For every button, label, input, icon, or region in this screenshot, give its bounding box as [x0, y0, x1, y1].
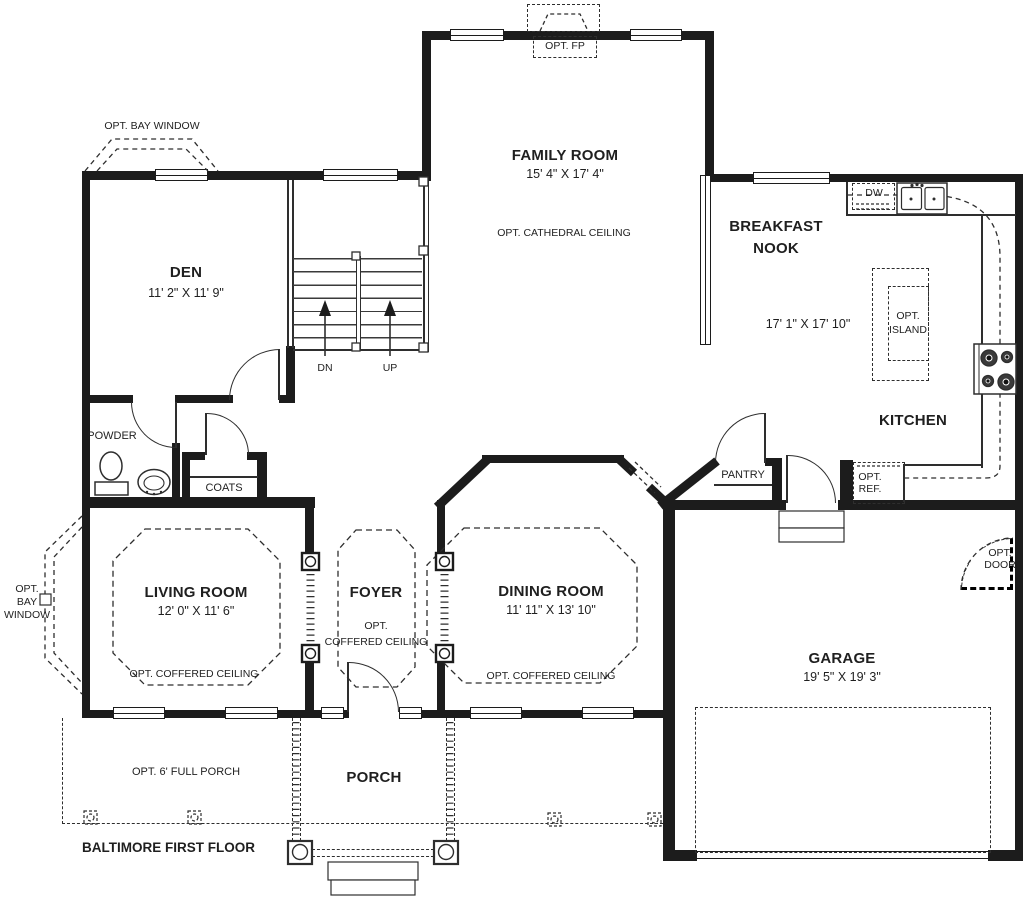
pantry-door-leaf: [764, 413, 766, 463]
opt-bay-window-left-label-1: OPT.: [15, 584, 38, 595]
opt-bay-window-top-label: OPT. BAY WINDOW: [104, 121, 199, 132]
living-room-dims: 12' 0" X 11' 6": [158, 605, 235, 618]
den-door-leaf: [278, 349, 280, 400]
dining-room-note: OPT. COFFERED CEILING: [487, 671, 616, 682]
wall: [663, 500, 675, 860]
porch-post-line: [446, 718, 447, 841]
powder-label: POWDER: [87, 431, 137, 442]
wall: [663, 850, 697, 861]
stairs-down-label: DN: [317, 363, 332, 374]
wall: [305, 497, 314, 559]
opt-bay-window-left-shape: [40, 516, 82, 694]
opt-fireplace-outline: [527, 4, 600, 32]
stair-wall: [423, 181, 425, 352]
porch-label: PORCH: [346, 770, 401, 785]
kitchen-sink-icon: [897, 183, 947, 214]
wall: [482, 455, 624, 463]
wall: [82, 171, 90, 718]
garage-label: GARAGE: [808, 651, 875, 666]
coats-label: COATS: [205, 483, 242, 494]
family-room-note: OPT. CATHEDRAL CEILING: [497, 228, 631, 239]
stair-stringer: [360, 256, 362, 351]
wall: [1015, 174, 1023, 861]
garage-dims: 19' 5" X 19' 3": [803, 671, 881, 684]
window: [450, 29, 504, 41]
wall: [305, 656, 314, 718]
family-room-dims: 15' 4" X 17' 4": [526, 168, 604, 181]
opt-bay-window-left-label-2: BAY: [17, 597, 37, 608]
porch-posts: [288, 841, 458, 864]
stair-wall: [428, 181, 430, 352]
diagonal-window: [629, 462, 661, 493]
opt-ref-label-2: REF.: [859, 484, 882, 495]
opt-bay-window-left-label-3: WINDOW: [4, 610, 50, 621]
kitchen-counter: [846, 182, 848, 216]
dining-room-label: DINING ROOM: [498, 584, 604, 599]
sidelight-window: [321, 707, 344, 719]
den-dims: 11' 2" X 11' 9": [148, 287, 224, 300]
stair-line: [293, 349, 423, 351]
breakfast-nook-label-1: BREAKFAST: [729, 219, 822, 234]
window: [225, 707, 278, 719]
kitchen-counter: [846, 214, 1016, 216]
foyer-label: FOYER: [350, 585, 403, 600]
window: [323, 169, 398, 181]
plan-title: BALTIMORE FIRST FLOOR: [82, 841, 255, 855]
stair-treads: [293, 258, 357, 351]
half-wall: [287, 180, 289, 348]
window: [470, 707, 522, 719]
window: [753, 172, 830, 184]
living-room-note: OPT. COFFERED CEILING: [130, 669, 259, 680]
window: [582, 707, 634, 719]
opt-bay-window-top-shape: [85, 139, 218, 171]
porch-edge: [312, 856, 434, 857]
powder-sink-icon: [138, 470, 170, 496]
wall: [422, 31, 431, 181]
window: [700, 175, 711, 345]
kitchen-label: KITCHEN: [879, 413, 947, 428]
coats-shelf: [190, 476, 258, 478]
opt-door-label-2: DOOR: [984, 560, 1016, 571]
wall: [182, 452, 205, 460]
window: [113, 707, 165, 719]
wall: [286, 346, 295, 403]
opt-door-label-1: OPT.: [988, 548, 1011, 559]
powder-door: [131, 402, 176, 448]
wall: [172, 443, 180, 503]
powder-door-leaf: [175, 402, 177, 448]
opt-island-label-1: OPT.: [896, 311, 919, 322]
window: [630, 29, 682, 41]
floor-plan: FAMILY ROOM 15' 4" X 17' 4" OPT. CATHEDR…: [0, 0, 1024, 901]
opt-ref-label-1: OPT.: [858, 472, 881, 483]
opt-porch-boundary: [62, 718, 63, 824]
coats-door: [207, 413, 249, 455]
dishwasher-label: DW: [865, 188, 883, 199]
opt-island-label-2: ISLAND: [889, 325, 927, 336]
kitchen-counter: [981, 216, 983, 468]
wall: [840, 460, 853, 510]
porch-post-line: [292, 718, 293, 841]
wall: [82, 497, 315, 508]
dining-room-dims: 11' 11" X 13' 10": [506, 604, 596, 617]
garage-entry-door: [788, 455, 836, 503]
foyer-note-2: COFFERED CEILING: [325, 637, 428, 648]
porch-post-line: [300, 718, 301, 841]
opt-porch-boundary: [62, 823, 663, 824]
garage-bay-outline: [695, 707, 991, 853]
opt-full-porch-label: OPT. 6' FULL PORCH: [132, 767, 240, 778]
pantry-door: [715, 413, 765, 463]
family-room-label: FAMILY ROOM: [512, 148, 618, 163]
front-door-leaf: [347, 662, 349, 712]
stair-stringer: [356, 256, 358, 351]
wall: [257, 452, 267, 505]
wall: [988, 850, 1023, 861]
coats-door-leaf: [205, 413, 207, 455]
wall: [437, 656, 445, 718]
porch-edge: [312, 849, 434, 850]
pantry-shelf: [714, 484, 772, 486]
stairs-up-label: UP: [383, 363, 398, 374]
foyer-note-1: OPT.: [364, 621, 387, 632]
toilet-icon: [95, 452, 128, 495]
wall: [772, 458, 782, 507]
porch-post-line: [454, 718, 455, 841]
garage-entry-door-leaf: [786, 455, 788, 503]
pantry-label: PANTRY: [721, 470, 765, 481]
sidelight-window: [399, 707, 422, 719]
breakfast-nook-label-2: NOOK: [753, 241, 799, 256]
den-label: DEN: [170, 265, 202, 280]
wall: [437, 500, 445, 558]
breakfast-nook-dims: 17' 1" X 17' 10": [766, 318, 851, 331]
window: [155, 169, 208, 181]
den-door: [229, 349, 280, 400]
front-door: [349, 662, 399, 712]
wall: [705, 31, 714, 182]
stair-treads: [361, 258, 422, 351]
opt-fireplace-label: OPT. FP: [545, 41, 585, 52]
kitchen-counter: [903, 464, 983, 466]
living-room-label: LIVING ROOM: [144, 585, 247, 600]
